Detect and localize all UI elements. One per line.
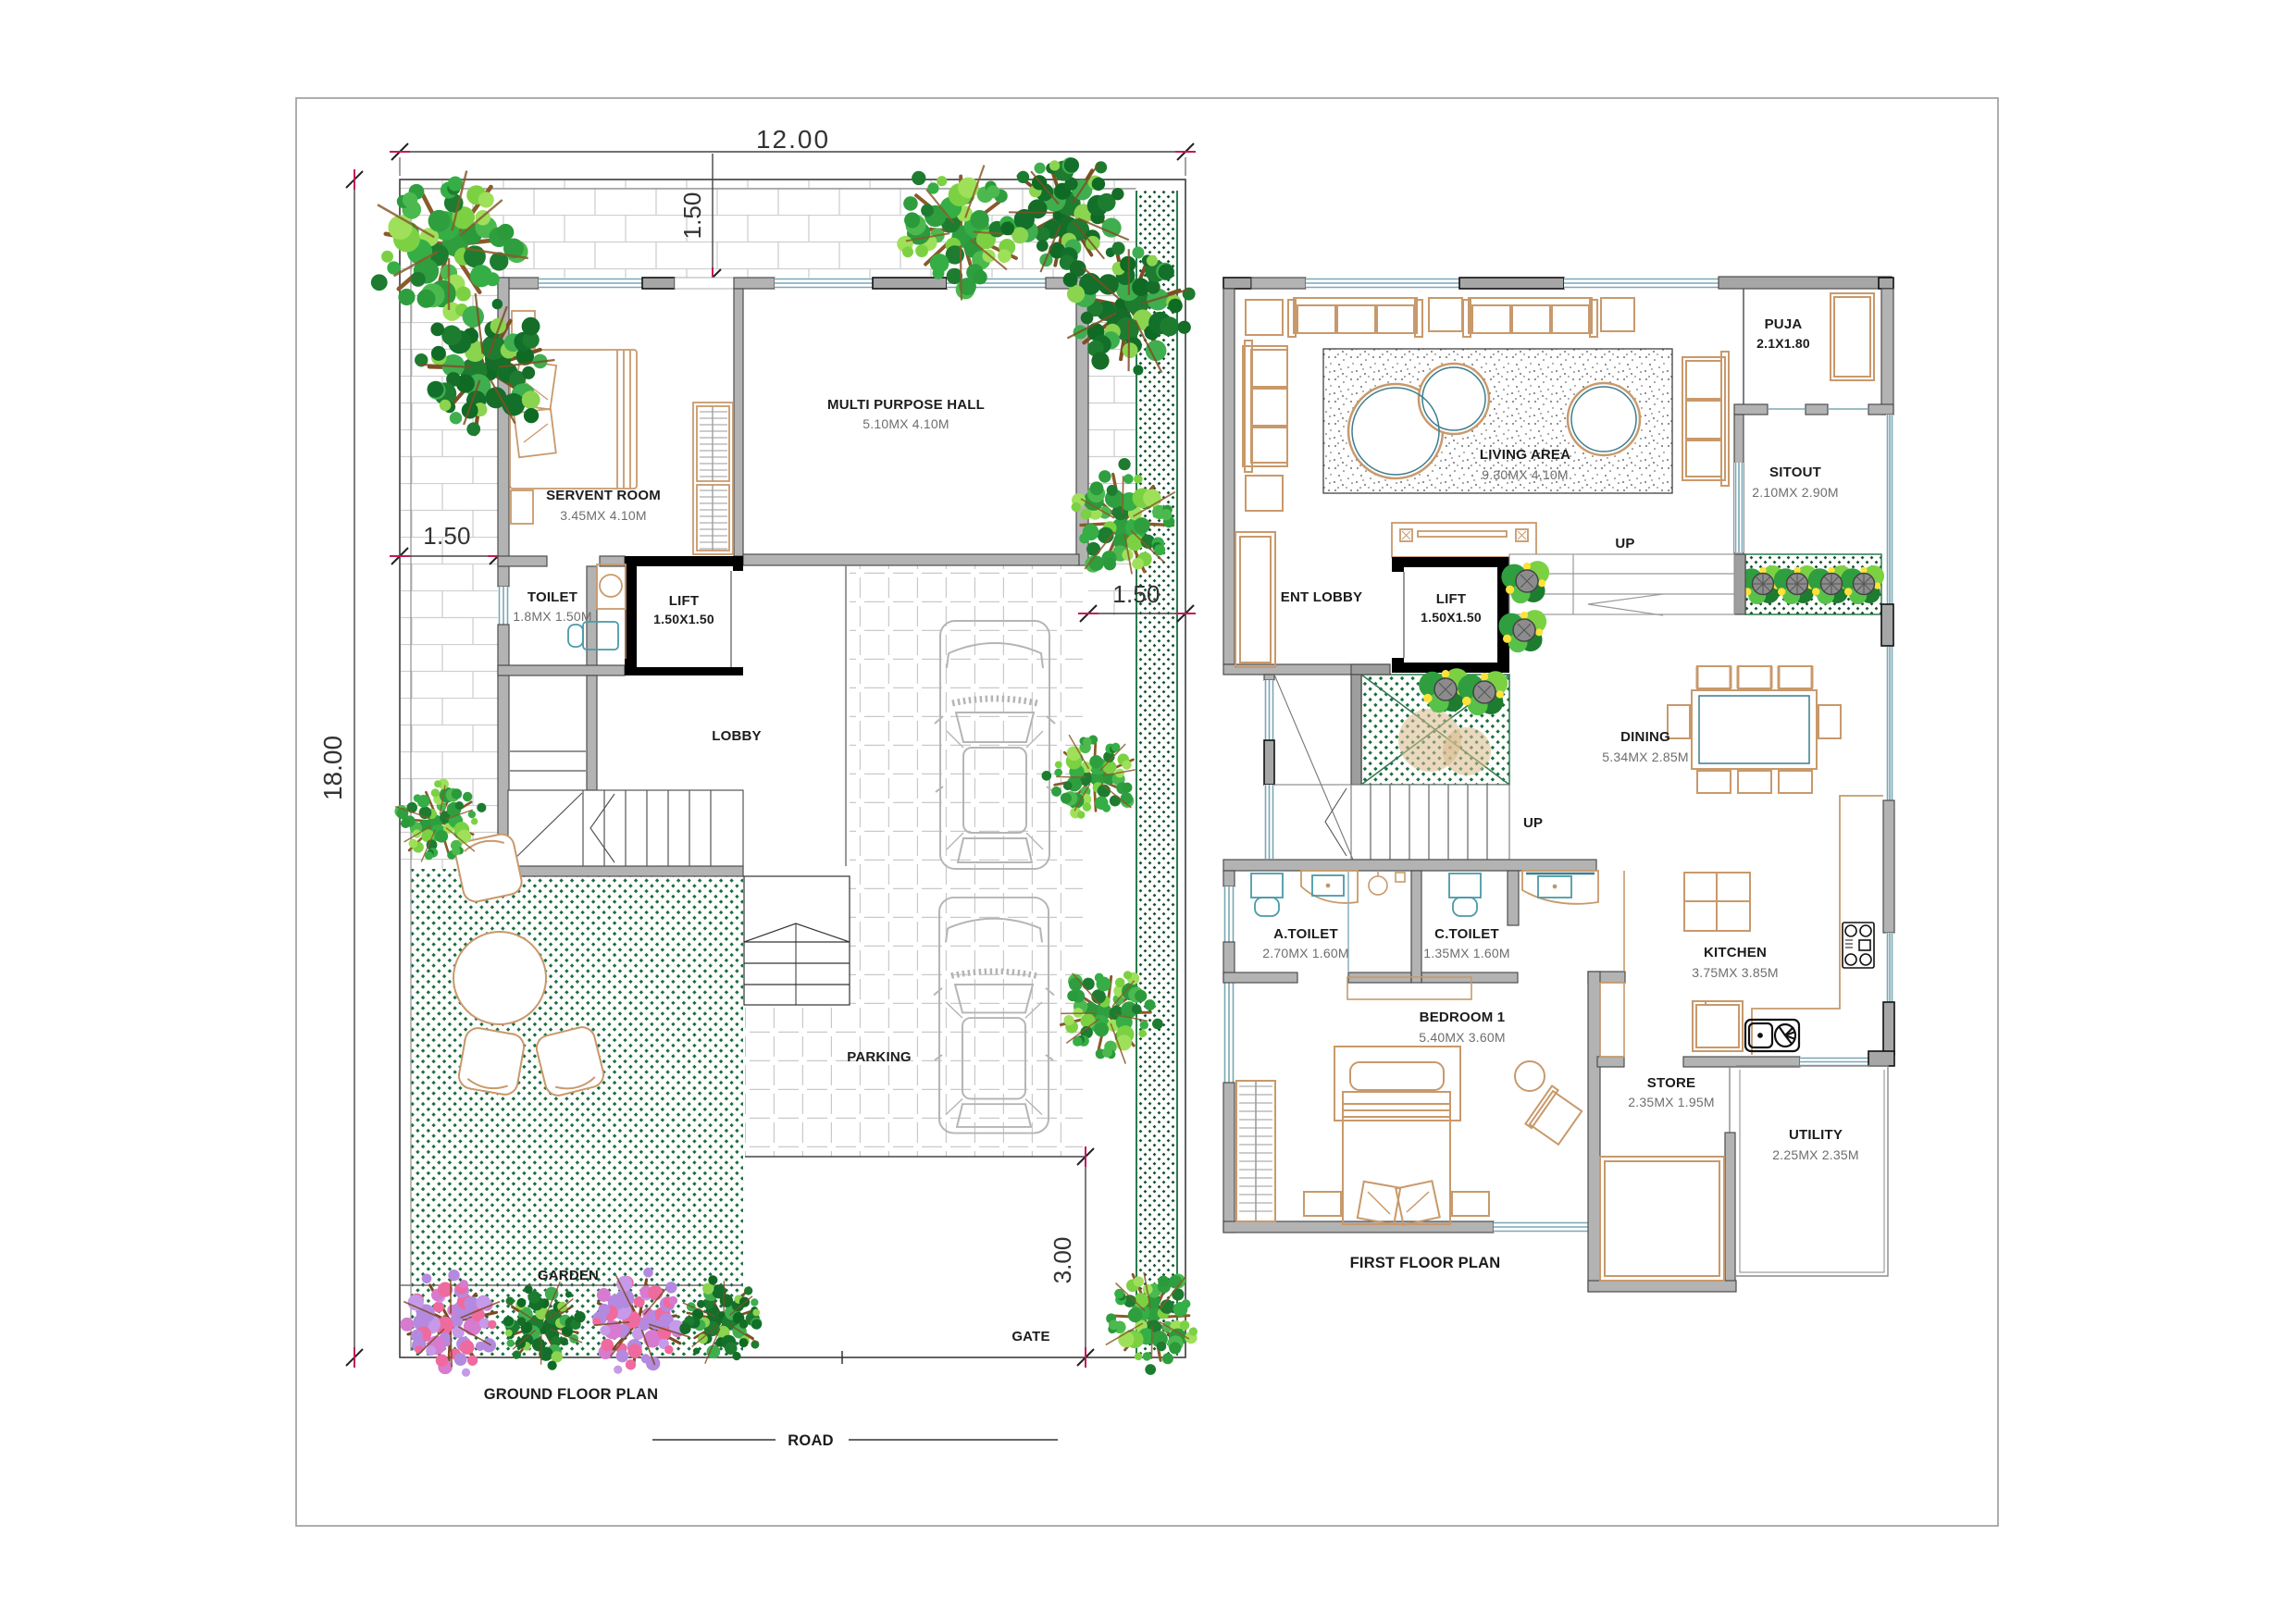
svg-text:DINING: DINING — [1620, 729, 1670, 745]
svg-text:UP: UP — [1615, 536, 1634, 551]
svg-text:LIFT: LIFT — [669, 593, 699, 609]
svg-text:5.34MX 2.85M: 5.34MX 2.85M — [1602, 750, 1688, 764]
svg-text:2.25MX 2.35M: 2.25MX 2.35M — [1772, 1147, 1858, 1162]
svg-text:A.TOILET: A.TOILET — [1273, 926, 1338, 942]
svg-text:GARDEN: GARDEN — [538, 1268, 599, 1283]
svg-text:1.35MX 1.60M: 1.35MX 1.60M — [1423, 946, 1509, 960]
svg-text:9.30MX 4.10M: 9.30MX 4.10M — [1482, 467, 1568, 482]
svg-text:TOILET: TOILET — [527, 589, 577, 605]
svg-text:3.45MX 4.10M: 3.45MX 4.10M — [560, 508, 646, 523]
svg-text:STORE: STORE — [1647, 1075, 1695, 1091]
svg-text:1.50: 1.50 — [423, 522, 470, 550]
svg-text:2.10MX 2.90M: 2.10MX 2.90M — [1752, 485, 1838, 500]
svg-text:SITOUT: SITOUT — [1769, 465, 1821, 480]
svg-text:2.70MX 1.60M: 2.70MX 1.60M — [1262, 946, 1348, 960]
svg-text:FIRST FLOOR PLAN: FIRST FLOOR PLAN — [1350, 1255, 1501, 1271]
svg-text:LIFT: LIFT — [1436, 591, 1466, 607]
svg-text:SERVENT ROOM: SERVENT ROOM — [546, 488, 661, 503]
svg-text:1.50X1.50: 1.50X1.50 — [1421, 610, 1482, 625]
svg-text:GATE: GATE — [1011, 1329, 1049, 1344]
svg-text:12.00: 12.00 — [756, 125, 830, 154]
svg-text:2.35MX 1.95M: 2.35MX 1.95M — [1628, 1095, 1714, 1109]
svg-text:LIVING AREA: LIVING AREA — [1480, 447, 1570, 463]
svg-text:18.00: 18.00 — [318, 736, 347, 800]
svg-text:UP: UP — [1523, 815, 1543, 831]
svg-text:UTILITY: UTILITY — [1789, 1127, 1843, 1143]
svg-text:KITCHEN: KITCHEN — [1704, 945, 1767, 960]
svg-text:LOBBY: LOBBY — [712, 728, 762, 744]
svg-text:PUJA: PUJA — [1765, 316, 1803, 332]
svg-text:ROAD: ROAD — [788, 1432, 833, 1449]
svg-text:BEDROOM 1: BEDROOM 1 — [1420, 1010, 1506, 1025]
svg-text:ENT LOBBY: ENT LOBBY — [1281, 589, 1362, 605]
svg-text:PARKING: PARKING — [847, 1049, 911, 1065]
svg-text:3.00: 3.00 — [1049, 1237, 1076, 1284]
svg-text:GROUND FLOOR PLAN: GROUND FLOOR PLAN — [484, 1386, 659, 1403]
svg-text:1.8MX 1.50M: 1.8MX 1.50M — [513, 609, 591, 624]
svg-text:C.TOILET: C.TOILET — [1434, 926, 1499, 942]
svg-text:1.50X1.50: 1.50X1.50 — [653, 612, 714, 626]
svg-text:1.50: 1.50 — [678, 192, 706, 240]
svg-text:5.10MX 4.10M: 5.10MX 4.10M — [863, 416, 949, 431]
svg-text:2.1X1.80: 2.1X1.80 — [1756, 336, 1810, 351]
svg-text:3.75MX 3.85M: 3.75MX 3.85M — [1692, 965, 1778, 980]
svg-text:1.50: 1.50 — [1112, 580, 1160, 608]
svg-text:MULTI PURPOSE HALL: MULTI PURPOSE HALL — [827, 397, 985, 413]
svg-text:5.40MX 3.60M: 5.40MX 3.60M — [1419, 1030, 1505, 1045]
